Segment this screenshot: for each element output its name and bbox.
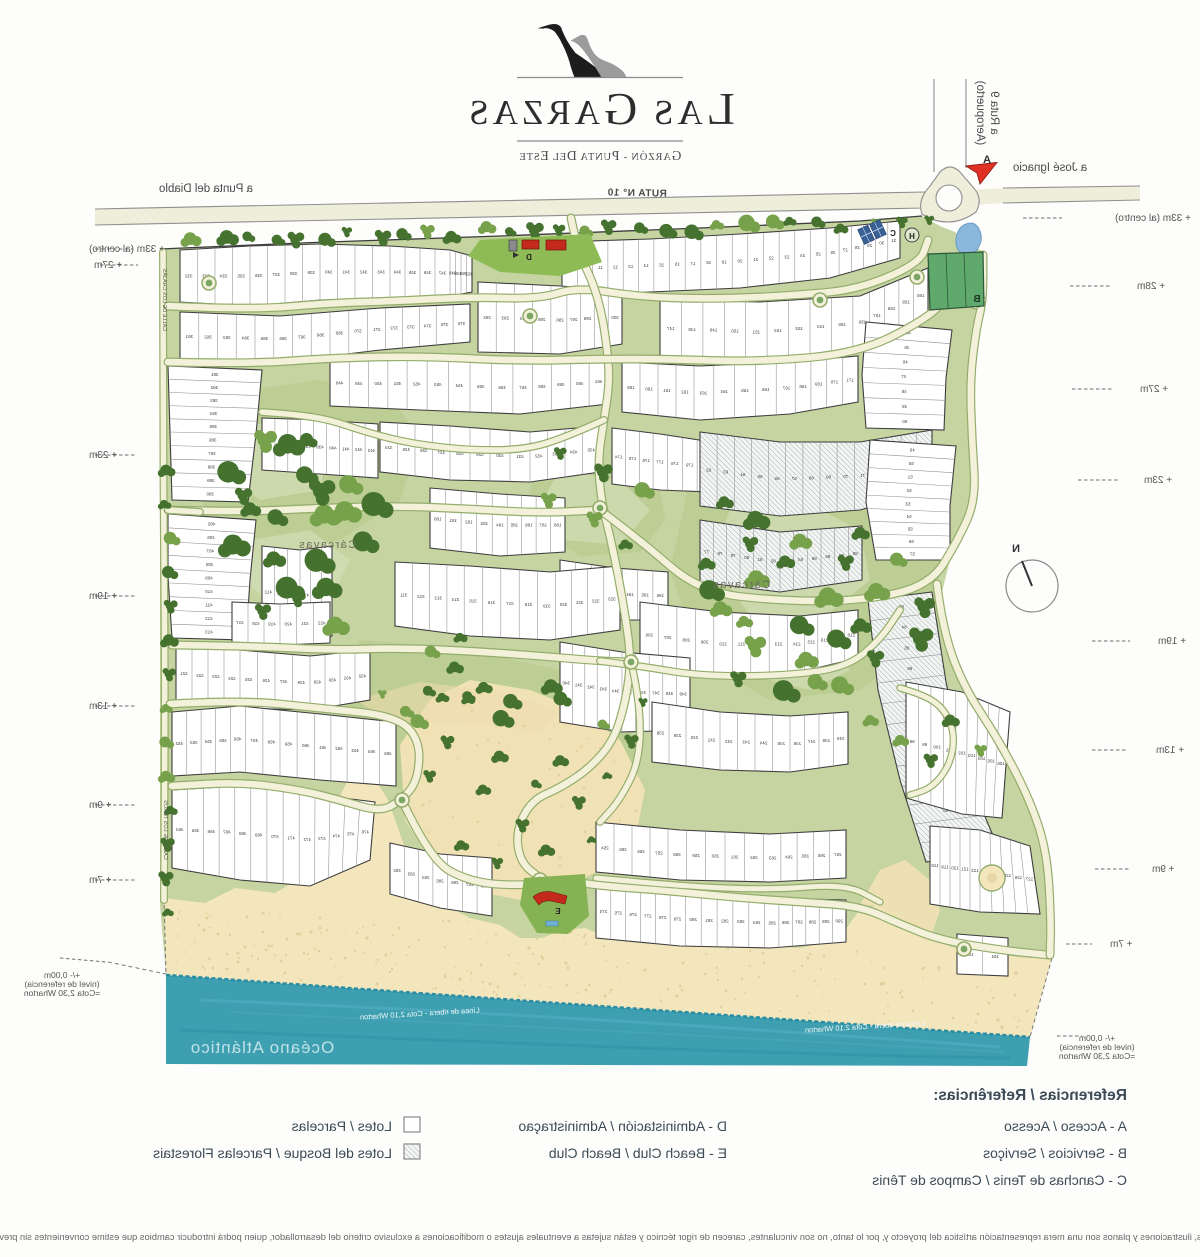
- svg-text:47: 47: [901, 374, 907, 379]
- svg-text:363: 363: [223, 335, 231, 340]
- svg-text:245: 245: [777, 741, 785, 746]
- svg-text:458: 458: [538, 384, 546, 389]
- svg-text:409: 409: [205, 576, 213, 581]
- svg-text:283: 283: [407, 871, 415, 876]
- svg-text:284: 284: [421, 875, 429, 880]
- svg-text:26: 26: [830, 250, 836, 255]
- svg-text:274: 274: [599, 909, 607, 914]
- svg-text:149: 149: [709, 328, 717, 333]
- svg-text:421: 421: [301, 621, 309, 626]
- svg-text:181: 181: [449, 518, 457, 523]
- svg-text:372: 372: [390, 326, 398, 331]
- svg-text:186: 186: [525, 523, 533, 528]
- svg-text:382: 382: [210, 385, 218, 390]
- svg-text:122: 122: [971, 868, 979, 873]
- svg-text:420: 420: [284, 622, 292, 627]
- svg-text:45: 45: [904, 345, 910, 350]
- svg-text:29: 29: [867, 243, 873, 248]
- svg-text:50: 50: [902, 419, 908, 424]
- svg-text:338: 338: [290, 271, 298, 276]
- svg-text:14: 14: [643, 263, 649, 268]
- svg-text:343: 343: [599, 687, 607, 692]
- svg-text:281: 281: [705, 918, 713, 923]
- svg-text:+ 7m: + 7m: [89, 875, 112, 886]
- svg-text:460: 460: [575, 381, 583, 386]
- svg-text:49: 49: [909, 447, 915, 452]
- svg-text:334: 334: [220, 274, 228, 279]
- svg-text:62: 62: [706, 468, 712, 473]
- svg-text:361: 361: [185, 334, 193, 339]
- svg-text:155: 155: [838, 322, 846, 327]
- svg-text:472: 472: [303, 837, 311, 842]
- svg-text:413: 413: [205, 630, 213, 635]
- svg-text:Las fotos, ilustraciones y pla: Las fotos, ilustraciones y planos son un…: [0, 1232, 1200, 1242]
- svg-text:106: 106: [997, 761, 1005, 766]
- svg-text:474: 474: [332, 834, 340, 839]
- svg-text:a Ruta 9: a Ruta 9: [988, 91, 1000, 134]
- svg-text:B: B: [973, 294, 980, 305]
- svg-text:343: 343: [377, 270, 385, 275]
- svg-text:50: 50: [908, 461, 914, 466]
- svg-text:183: 183: [480, 521, 488, 526]
- svg-text:148: 148: [688, 327, 696, 332]
- svg-text:461: 461: [318, 745, 326, 750]
- svg-text:277: 277: [644, 913, 652, 918]
- svg-text:341: 341: [342, 270, 350, 275]
- svg-text:239: 239: [673, 733, 681, 738]
- svg-text:383: 383: [210, 398, 218, 403]
- svg-text:285: 285: [436, 879, 444, 884]
- svg-text:126: 126: [1014, 875, 1022, 880]
- svg-text:CALLE DE LOS CHAJÁS: CALLE DE LOS CHAJÁS: [161, 268, 168, 331]
- svg-text:424: 424: [228, 676, 236, 681]
- svg-text:314: 314: [451, 597, 459, 602]
- svg-text:+ 27m: + 27m: [1140, 384, 1168, 395]
- svg-text:+ 27m: + 27m: [94, 260, 122, 271]
- svg-text:292: 292: [483, 315, 491, 320]
- svg-text:242: 242: [725, 739, 733, 744]
- svg-text:459: 459: [557, 382, 565, 387]
- svg-text:452: 452: [413, 382, 421, 387]
- svg-text:79: 79: [730, 553, 736, 558]
- svg-text:C: C: [890, 229, 896, 238]
- svg-text:319: 319: [543, 603, 551, 608]
- svg-text:151: 151: [752, 329, 760, 334]
- svg-text:63: 63: [723, 470, 729, 475]
- svg-text:460: 460: [301, 743, 309, 748]
- svg-text:156: 156: [858, 319, 866, 324]
- svg-text:289: 289: [822, 919, 830, 924]
- svg-text:371: 371: [373, 327, 381, 332]
- svg-text:312: 312: [417, 594, 425, 599]
- svg-text:340: 340: [562, 681, 570, 686]
- svg-text:390: 390: [206, 492, 214, 497]
- svg-text:246: 246: [793, 741, 801, 746]
- svg-text:287: 287: [795, 920, 803, 925]
- svg-text:+ 23m: + 23m: [89, 450, 117, 461]
- svg-text:164: 164: [720, 389, 728, 394]
- svg-text:282: 282: [721, 919, 729, 924]
- svg-text:349: 349: [679, 691, 687, 696]
- svg-text:347: 347: [652, 691, 660, 696]
- svg-text:428: 428: [297, 680, 305, 685]
- svg-text:88: 88: [852, 551, 858, 556]
- svg-text:462: 462: [335, 746, 343, 751]
- svg-text:421: 421: [180, 671, 188, 676]
- svg-text:27: 27: [842, 248, 848, 253]
- svg-text:N: N: [1012, 543, 1020, 555]
- svg-text:457: 457: [519, 385, 527, 390]
- svg-text:70: 70: [843, 474, 849, 479]
- svg-text:209: 209: [700, 640, 708, 645]
- svg-text:340: 340: [325, 270, 333, 275]
- svg-text:B - Servicios / Serviços: B - Servicios / Serviços: [983, 1145, 1127, 1161]
- svg-text:318: 318: [524, 602, 532, 607]
- svg-text:275: 275: [614, 911, 622, 916]
- svg-text:+ 9m: + 9m: [89, 800, 112, 811]
- svg-text:465: 465: [384, 751, 392, 756]
- svg-text:454: 454: [204, 739, 212, 744]
- svg-text:451: 451: [393, 381, 401, 386]
- svg-text:453: 453: [434, 382, 442, 387]
- svg-text:317: 317: [506, 601, 514, 606]
- svg-text:21: 21: [753, 257, 759, 262]
- svg-text:443: 443: [367, 448, 375, 453]
- svg-text:464: 464: [367, 749, 375, 754]
- svg-text:315: 315: [469, 599, 477, 604]
- svg-text:263: 263: [768, 855, 776, 860]
- svg-text:465: 465: [191, 828, 199, 833]
- svg-text:100: 100: [933, 745, 941, 750]
- svg-text:464: 464: [176, 827, 184, 832]
- svg-text:16: 16: [674, 262, 680, 267]
- svg-text:166: 166: [762, 387, 770, 392]
- svg-text:364: 364: [241, 336, 249, 341]
- svg-text:194: 194: [626, 592, 634, 597]
- svg-text:297: 297: [570, 317, 578, 322]
- svg-text:432: 432: [358, 674, 366, 679]
- svg-text:345: 345: [408, 270, 416, 275]
- svg-text:22: 22: [768, 256, 774, 261]
- svg-text:120: 120: [951, 866, 959, 871]
- svg-text:459: 459: [284, 741, 292, 746]
- svg-text:347: 347: [438, 270, 446, 275]
- svg-text:285: 285: [768, 920, 776, 925]
- svg-text:86: 86: [825, 554, 831, 559]
- svg-text:E: E: [555, 907, 561, 916]
- svg-text:162: 162: [681, 389, 689, 394]
- svg-text:105: 105: [987, 759, 995, 764]
- svg-text:323: 323: [608, 596, 616, 601]
- svg-text:261: 261: [730, 854, 738, 859]
- svg-text:457: 457: [250, 738, 258, 743]
- svg-text:+ 7m: + 7m: [1110, 939, 1133, 950]
- svg-text:255: 255: [619, 847, 627, 852]
- svg-text:Cárcavas: Cárcavas: [712, 579, 770, 591]
- svg-text:+ 19m: + 19m: [89, 591, 117, 602]
- svg-text:267: 267: [834, 852, 842, 857]
- svg-text:467: 467: [223, 830, 231, 835]
- svg-text:+ 23m: + 23m: [1144, 475, 1172, 486]
- svg-text:435: 435: [587, 448, 595, 453]
- svg-text:426: 426: [262, 678, 270, 683]
- svg-text:375: 375: [440, 322, 448, 327]
- svg-text:424: 424: [385, 445, 393, 450]
- svg-text:82: 82: [770, 559, 776, 564]
- svg-text:157: 157: [873, 313, 881, 318]
- svg-text:215: 215: [807, 640, 815, 645]
- svg-text:348: 348: [665, 691, 673, 696]
- svg-text:412: 412: [264, 589, 272, 594]
- svg-text:a José Ignacio: a José Ignacio: [1013, 162, 1087, 174]
- svg-text:102: 102: [958, 751, 966, 756]
- svg-text:385: 385: [209, 424, 217, 429]
- svg-text:468: 468: [238, 831, 246, 836]
- svg-text:412: 412: [205, 616, 213, 621]
- svg-text:293: 293: [501, 316, 509, 321]
- svg-text:28: 28: [854, 245, 860, 250]
- svg-text:442: 442: [354, 447, 362, 452]
- svg-text:25: 25: [815, 252, 821, 257]
- svg-text:456: 456: [233, 737, 241, 742]
- svg-text:178: 178: [671, 461, 679, 466]
- svg-text:84: 84: [798, 557, 804, 562]
- svg-text:(Aeropuerto): (Aeropuerto): [974, 81, 986, 146]
- svg-text:+ 13m: + 13m: [89, 701, 117, 712]
- svg-text:161: 161: [663, 388, 671, 393]
- svg-text:290: 290: [835, 919, 843, 924]
- svg-text:455: 455: [476, 384, 484, 389]
- svg-text:147: 147: [666, 326, 674, 331]
- svg-text:20: 20: [737, 259, 743, 264]
- svg-text:206: 206: [645, 633, 653, 638]
- svg-text:369: 369: [335, 331, 343, 336]
- svg-text:11: 11: [597, 265, 602, 270]
- svg-text:417: 417: [236, 620, 244, 625]
- svg-text:Lotes / Parcelas: Lotes / Parcelas: [292, 1118, 392, 1134]
- svg-text:431: 431: [516, 454, 524, 459]
- svg-text:=Cota 2,30 Wharton: =Cota 2,30 Wharton: [24, 988, 101, 998]
- svg-text:463: 463: [351, 748, 359, 753]
- svg-text:163: 163: [699, 390, 707, 395]
- svg-text:276: 276: [629, 912, 637, 917]
- svg-text:150: 150: [731, 329, 739, 334]
- svg-text:336: 336: [255, 273, 263, 278]
- svg-text:332: 332: [185, 274, 193, 279]
- svg-text:=Cota 2,30 Wharton: =Cota 2,30 Wharton: [1059, 1051, 1136, 1061]
- svg-text:103: 103: [968, 753, 976, 758]
- svg-text:238: 238: [656, 731, 664, 736]
- svg-text:266: 266: [817, 853, 825, 858]
- svg-text:19: 19: [721, 259, 727, 264]
- svg-text:66: 66: [774, 476, 780, 481]
- svg-text:65: 65: [757, 474, 763, 479]
- svg-text:12: 12: [613, 264, 619, 269]
- svg-text:179: 179: [685, 462, 693, 467]
- svg-text:427: 427: [280, 679, 288, 684]
- svg-text:52: 52: [906, 488, 912, 493]
- svg-text:470: 470: [271, 834, 279, 839]
- svg-text:188: 188: [554, 523, 562, 528]
- svg-text:258: 258: [673, 852, 681, 857]
- svg-text:184: 184: [496, 523, 504, 528]
- svg-text:449: 449: [355, 381, 363, 386]
- svg-text:388: 388: [207, 465, 215, 470]
- svg-text:Referencias / Referências:: Referencias / Referências:: [933, 1087, 1127, 1104]
- svg-text:Cárcavas: Cárcavas: [298, 539, 356, 551]
- svg-text:452: 452: [175, 741, 183, 746]
- svg-text:389: 389: [207, 478, 215, 483]
- svg-text:85: 85: [904, 645, 910, 650]
- svg-text:154: 154: [816, 324, 824, 329]
- svg-text:a Punta del Diablo: a Punta del Diablo: [159, 183, 253, 195]
- svg-text:320: 320: [559, 602, 567, 607]
- svg-text:296: 296: [556, 318, 564, 323]
- svg-text:152: 152: [774, 328, 782, 333]
- svg-text:422: 422: [196, 673, 204, 678]
- svg-text:298: 298: [583, 316, 591, 321]
- svg-text:284: 284: [753, 920, 761, 925]
- svg-text:55: 55: [907, 526, 913, 531]
- svg-text:387: 387: [208, 451, 216, 456]
- svg-text:454: 454: [455, 383, 463, 388]
- svg-text:316: 316: [487, 600, 495, 605]
- svg-text:D: D: [526, 253, 532, 262]
- svg-text:54: 54: [906, 514, 912, 519]
- svg-text:67: 67: [791, 476, 797, 481]
- svg-text:182: 182: [465, 519, 473, 524]
- svg-text:208: 208: [682, 637, 690, 642]
- svg-text:153: 153: [795, 326, 803, 331]
- svg-text:51: 51: [907, 474, 913, 479]
- svg-text:295: 295: [538, 317, 546, 322]
- svg-text:99: 99: [922, 742, 928, 747]
- svg-text:247: 247: [808, 739, 816, 744]
- svg-text:466: 466: [207, 829, 215, 834]
- svg-text:168: 168: [799, 384, 807, 389]
- svg-text:165: 165: [741, 388, 749, 393]
- svg-text:+ 13m: + 13m: [1156, 745, 1184, 756]
- svg-text:240: 240: [690, 735, 698, 740]
- svg-text:259: 259: [692, 853, 700, 858]
- svg-text:384: 384: [209, 411, 217, 416]
- svg-text:257: 257: [655, 851, 663, 856]
- svg-text:440: 440: [329, 445, 337, 450]
- svg-text:365: 365: [260, 336, 268, 341]
- svg-text:+ 33m (al centro): + 33m (al centro): [1115, 213, 1191, 224]
- svg-text:422: 422: [317, 620, 325, 625]
- svg-text:57: 57: [909, 551, 915, 556]
- svg-text:286: 286: [781, 920, 789, 925]
- svg-text:176: 176: [642, 458, 650, 463]
- svg-text:160: 160: [916, 293, 924, 298]
- svg-text:249: 249: [837, 736, 845, 741]
- svg-text:288: 288: [808, 919, 816, 924]
- svg-text:386: 386: [208, 437, 216, 442]
- svg-text:405: 405: [207, 521, 215, 526]
- svg-text:280: 280: [689, 917, 697, 922]
- svg-text:30: 30: [879, 241, 885, 246]
- svg-text:160: 160: [645, 387, 653, 392]
- svg-text:196: 196: [656, 593, 664, 598]
- svg-text:313: 313: [434, 596, 442, 601]
- svg-text:69: 69: [826, 475, 832, 480]
- svg-text:351: 351: [465, 271, 473, 276]
- svg-text:283: 283: [737, 919, 745, 924]
- svg-text:167: 167: [782, 386, 790, 391]
- svg-text:121: 121: [961, 867, 969, 872]
- svg-text:+ 33m (al centro): + 33m (al centro): [89, 244, 165, 255]
- svg-text:453: 453: [190, 740, 198, 745]
- svg-text:410: 410: [205, 589, 213, 594]
- svg-text:260: 260: [711, 854, 719, 859]
- svg-text:448: 448: [335, 381, 343, 386]
- svg-text:265: 265: [801, 854, 809, 859]
- svg-text:+ 9m: + 9m: [1152, 864, 1175, 875]
- svg-text:441: 441: [342, 446, 350, 451]
- svg-text:D - Administación / Administra: D - Administación / Administraçao: [518, 1118, 727, 1134]
- svg-text:175: 175: [628, 456, 636, 461]
- svg-text:+ 19m: + 19m: [1158, 636, 1186, 647]
- svg-text:370: 370: [354, 329, 362, 334]
- svg-text:456: 456: [498, 385, 506, 390]
- svg-text:471: 471: [287, 836, 295, 841]
- svg-text:Lotes del Bosque / Parcelas Fl: Lotes del Bosque / Parcelas Florestais: [153, 1145, 392, 1161]
- svg-text:159: 159: [902, 300, 910, 305]
- svg-text:376: 376: [457, 321, 465, 326]
- svg-text:243: 243: [742, 740, 750, 745]
- svg-text:475: 475: [347, 832, 355, 837]
- svg-text:286: 286: [451, 880, 459, 885]
- svg-text:262: 262: [750, 855, 758, 860]
- svg-text:366: 366: [279, 336, 287, 341]
- svg-text:244: 244: [760, 740, 768, 745]
- svg-text:78: 78: [717, 551, 723, 556]
- svg-text:53: 53: [905, 502, 911, 507]
- svg-text:68: 68: [808, 475, 814, 480]
- svg-text:418: 418: [252, 621, 260, 626]
- svg-text:367: 367: [298, 334, 306, 339]
- svg-text:476: 476: [361, 830, 369, 835]
- svg-text:85: 85: [811, 556, 817, 561]
- svg-text:24: 24: [800, 253, 806, 258]
- svg-text:15: 15: [659, 262, 665, 267]
- svg-text:423: 423: [212, 674, 220, 679]
- svg-text:A - Acceso / Acesso: A - Acceso / Acesso: [1004, 1118, 1127, 1134]
- svg-text:195: 195: [641, 593, 649, 598]
- svg-text:368: 368: [316, 332, 324, 337]
- svg-text:171: 171: [846, 378, 854, 383]
- svg-text:450: 450: [374, 381, 382, 386]
- svg-text:254: 254: [601, 845, 609, 850]
- svg-text:346: 346: [423, 270, 431, 275]
- svg-text:406: 406: [207, 535, 215, 540]
- svg-text:411: 411: [205, 603, 213, 608]
- svg-text:282: 282: [393, 868, 401, 873]
- svg-text:207: 207: [663, 635, 671, 640]
- svg-text:154: 154: [991, 954, 999, 959]
- svg-text:174: 174: [615, 454, 623, 459]
- svg-text:429: 429: [313, 680, 321, 685]
- svg-text:71: 71: [860, 473, 866, 478]
- svg-text:H: H: [909, 232, 915, 241]
- svg-text:432: 432: [535, 454, 543, 459]
- svg-text:31: 31: [891, 238, 897, 243]
- svg-text:64: 64: [740, 472, 746, 477]
- svg-text:342: 342: [587, 685, 595, 690]
- svg-text:CALLE DE LOS TEROS: CALLE DE LOS TEROS: [162, 800, 168, 860]
- svg-text:86: 86: [907, 666, 913, 671]
